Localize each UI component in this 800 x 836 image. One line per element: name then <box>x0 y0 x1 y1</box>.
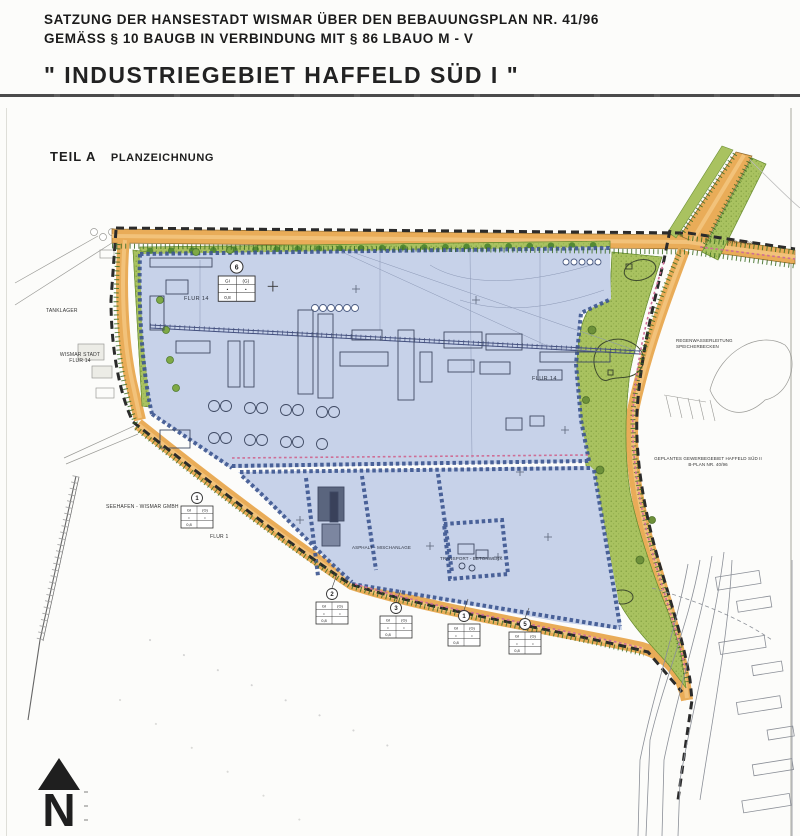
label-regenwasserleitung: REGENWASSERLEITUNG SPEICHERBECKEN <box>676 338 733 349</box>
svg-text:(G): (G) <box>243 278 250 283</box>
scanned-plan-page: SATZUNG DER HANSESTADT WISMAR ÜBER DEN B… <box>0 0 800 836</box>
industrial-area-layer <box>140 247 640 631</box>
svg-text:(G): (G) <box>337 604 343 609</box>
svg-text:GI: GI <box>454 626 458 631</box>
svg-text:0,8: 0,8 <box>385 632 391 637</box>
label-transport-betonwerk: TRANSPORT - BETONWERK <box>440 556 503 562</box>
svg-text:(G): (G) <box>202 508 208 513</box>
svg-text:0,8: 0,8 <box>224 295 231 300</box>
svg-text:0,8: 0,8 <box>453 640 459 645</box>
use-template-west: 1 GI (G) • • 0,8 <box>181 493 213 529</box>
label-wismar-stadt-line2: FLUR 14 <box>42 358 118 364</box>
plan-drawing: 6 GI (G) • • 0,8 1 GI (G) • • 0,8 2 <box>0 0 800 836</box>
svg-text:6: 6 <box>235 264 239 271</box>
svg-text:(G): (G) <box>469 626 475 631</box>
label-wismar-stadt: WISMAR STADT FLUR 14 <box>42 352 118 365</box>
svg-text:0,8: 0,8 <box>321 618 327 623</box>
svg-text:GI: GI <box>386 618 390 623</box>
svg-text:(G): (G) <box>401 618 407 623</box>
label-flur1: FLUR 1 <box>210 534 228 540</box>
label-geplantes-gewerbegebiet: GEPLANTES GEWERBEGEBIET HAFFELD SÜD II B… <box>648 456 768 467</box>
svg-text:0,8: 0,8 <box>186 522 192 527</box>
svg-text:GI: GI <box>225 278 230 283</box>
label-geplantes-line1: GEPLANTES GEWERBEGEBIET HAFFELD SÜD II <box>648 456 768 462</box>
svg-text:0,8: 0,8 <box>514 648 520 653</box>
svg-text:N: N <box>42 784 75 836</box>
label-regenwasserleitung-line2: SPEICHERBECKEN <box>676 344 733 350</box>
svg-text:GI: GI <box>187 508 191 513</box>
label-seehafen: SEEHAFEN - WISMAR GMBH <box>106 504 179 510</box>
label-tanklager: TANKLAGER <box>46 308 78 314</box>
label-flur14-east: FLUR 14 <box>532 376 557 383</box>
label-flur14-west: FLUR 14 <box>184 296 209 303</box>
label-geplantes-line2: B-PLAN NR. 40/96 <box>648 462 768 468</box>
svg-text:GI: GI <box>515 634 519 639</box>
label-regenwasserleitung-line1: REGENWASSERLEITUNG <box>676 338 733 344</box>
label-asphalt-mischanlage: ASPHALT - MISCHANLAGE <box>352 545 411 551</box>
svg-text:GI: GI <box>322 604 326 609</box>
svg-text:(G): (G) <box>530 634 536 639</box>
north-arrow: N <box>38 758 88 836</box>
